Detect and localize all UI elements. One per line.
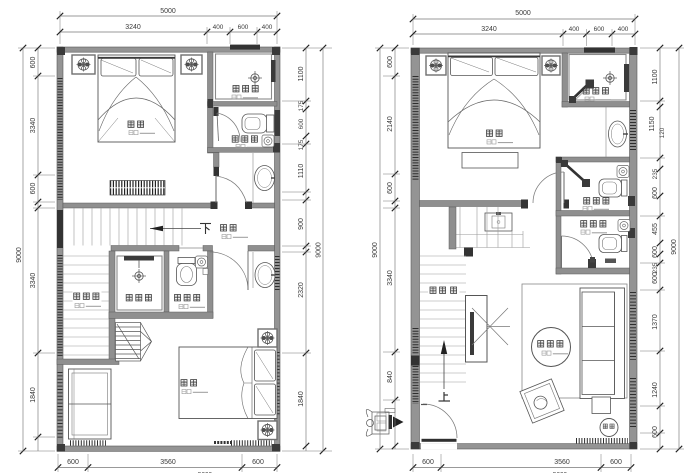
svg-text:600: 600 bbox=[30, 57, 37, 69]
svg-text:840: 840 bbox=[387, 371, 394, 383]
svg-text:1370: 1370 bbox=[652, 314, 659, 330]
svg-text:2320: 2320 bbox=[298, 282, 305, 298]
svg-text:1240: 1240 bbox=[652, 382, 659, 398]
svg-text:600: 600 bbox=[594, 26, 605, 33]
svg-text:3560: 3560 bbox=[160, 459, 176, 466]
svg-text:235: 235 bbox=[652, 168, 659, 179]
svg-text:400: 400 bbox=[569, 26, 580, 33]
svg-text:600: 600 bbox=[67, 459, 79, 466]
svg-text:9000: 9000 bbox=[671, 239, 678, 255]
svg-text:9000: 9000 bbox=[316, 242, 323, 258]
svg-text:1100: 1100 bbox=[652, 69, 659, 84]
svg-text:900: 900 bbox=[298, 218, 305, 230]
svg-text:3340: 3340 bbox=[30, 118, 37, 134]
svg-text:455: 455 bbox=[652, 223, 659, 235]
svg-text:600: 600 bbox=[387, 182, 394, 194]
svg-text:120: 120 bbox=[659, 127, 666, 138]
svg-text:1150: 1150 bbox=[649, 116, 656, 131]
svg-text:3340: 3340 bbox=[30, 273, 37, 289]
svg-text:400: 400 bbox=[618, 26, 629, 33]
svg-text:3240: 3240 bbox=[481, 26, 497, 33]
svg-text:600: 600 bbox=[652, 246, 659, 258]
svg-text:1100: 1100 bbox=[298, 66, 305, 81]
svg-text:175: 175 bbox=[298, 139, 305, 150]
svg-text:175: 175 bbox=[298, 100, 305, 111]
svg-text:5000: 5000 bbox=[160, 8, 176, 15]
svg-text:400: 400 bbox=[262, 24, 273, 31]
svg-text:3560: 3560 bbox=[554, 459, 570, 466]
svg-text:600: 600 bbox=[652, 187, 659, 199]
svg-text:600: 600 bbox=[252, 459, 264, 466]
svg-text:600: 600 bbox=[652, 272, 659, 284]
svg-text:1840: 1840 bbox=[30, 387, 37, 403]
svg-text:600: 600 bbox=[30, 183, 37, 195]
svg-text:1840: 1840 bbox=[298, 391, 305, 407]
svg-text:600: 600 bbox=[387, 56, 394, 68]
svg-text:9000: 9000 bbox=[372, 242, 379, 258]
svg-text:600: 600 bbox=[652, 426, 659, 438]
svg-text:600: 600 bbox=[610, 459, 622, 466]
svg-text:2140: 2140 bbox=[387, 116, 394, 132]
svg-text:600: 600 bbox=[298, 118, 305, 129]
svg-text:235: 235 bbox=[652, 262, 659, 273]
svg-text:600: 600 bbox=[238, 24, 249, 31]
svg-text:1110: 1110 bbox=[298, 164, 305, 179]
svg-text:3240: 3240 bbox=[125, 24, 141, 31]
svg-text:9000: 9000 bbox=[16, 247, 23, 263]
svg-text:3340: 3340 bbox=[387, 270, 394, 286]
svg-text:400: 400 bbox=[213, 24, 224, 31]
svg-text:600: 600 bbox=[422, 459, 434, 466]
svg-text:5000: 5000 bbox=[515, 10, 531, 17]
